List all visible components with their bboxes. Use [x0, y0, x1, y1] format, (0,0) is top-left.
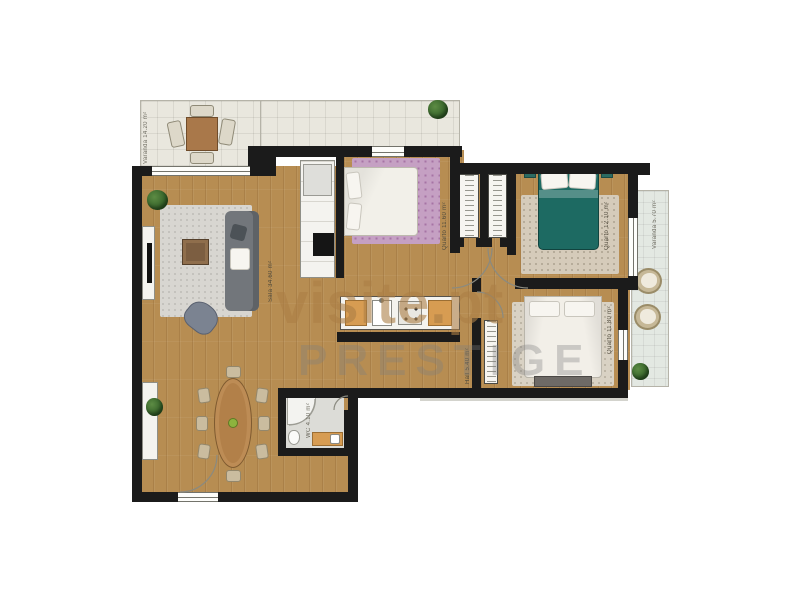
tv — [147, 243, 152, 283]
wall-top-living-stub — [132, 166, 154, 176]
bedroom2-duvet-fold — [539, 190, 598, 198]
kitchen-oven — [313, 233, 334, 256]
floor-plan-canvas: Varanda 14.20 m² Sala 34.60 m² Quarto 11… — [0, 0, 800, 600]
sofa-pillow — [230, 248, 250, 270]
wall-bed2-right-upper — [628, 163, 638, 218]
dining-chair — [255, 387, 269, 404]
coffee-table — [182, 239, 209, 265]
wc-basin — [330, 434, 340, 444]
watermark-site: visite.pt — [276, 270, 504, 337]
dining-chair — [255, 443, 269, 460]
balcony-slab-line — [420, 398, 628, 401]
wall-closet-front-1 — [450, 238, 464, 247]
terrace-plant — [428, 100, 448, 119]
wall-wc-left — [278, 388, 286, 456]
wall-top-kitchen — [270, 146, 462, 157]
wall-corridor-bottom — [278, 388, 628, 398]
bedroom2-window — [628, 218, 638, 276]
hall-closet-left — [459, 174, 479, 238]
bedroom1-window — [372, 146, 404, 157]
bedroom3-label: Quarto 11.80 m² — [607, 302, 614, 354]
bedroom1-pillow — [346, 202, 363, 230]
bedroom1-label: Quarto 11.60 m² — [442, 198, 449, 250]
balcony-plant — [632, 363, 649, 380]
entry-door-threshold — [178, 492, 218, 502]
sideboard — [142, 382, 158, 460]
wall-closet-front-2 — [476, 238, 492, 247]
terrace-chair-top — [190, 105, 214, 117]
wall-closet-divider — [480, 174, 488, 240]
wall-top-bed2 — [452, 163, 638, 174]
dining-chair — [258, 416, 270, 431]
dining-chair — [226, 366, 241, 378]
dining-chair — [226, 470, 241, 482]
terrace-label: Varanda 14.20 m² — [143, 104, 150, 164]
hall-closet-right — [488, 174, 507, 238]
bedroom2-label: Quarto 12.10 m² — [604, 198, 611, 250]
wall-wc-bottom — [278, 448, 352, 456]
watermark-agency: PRESTIGE — [298, 336, 593, 386]
wall-closet-front-3 — [500, 238, 516, 247]
wc-label: WC 4.10 m² — [306, 398, 313, 438]
terrace-chair-bottom — [190, 152, 214, 164]
wall-bottom — [132, 492, 358, 502]
terrace-table — [186, 117, 218, 151]
dining-centerpiece — [228, 418, 238, 428]
balcony-chair-cushion — [640, 309, 656, 324]
dining-chair — [197, 387, 211, 404]
dining-chair — [197, 443, 211, 460]
bedroom3-window — [618, 330, 628, 360]
wall-wc-right — [344, 410, 352, 452]
wall-kitchen-bed1-divider — [336, 146, 344, 278]
living-label: Sala 34.60 m² — [268, 238, 275, 302]
wc-toilet — [288, 430, 300, 445]
balcony-label: Varanda 5.70 m² — [652, 197, 659, 249]
terrace-sliding-door — [152, 166, 250, 176]
balcony-chair-cushion — [641, 273, 657, 288]
dining-chair — [196, 416, 208, 431]
bedroom3-pillow — [564, 301, 595, 317]
bedroom3-pillow — [529, 301, 560, 317]
living-plant — [147, 190, 168, 210]
wall-left — [132, 166, 142, 502]
dining-plant — [146, 398, 163, 416]
kitchen-fridge — [303, 164, 332, 196]
